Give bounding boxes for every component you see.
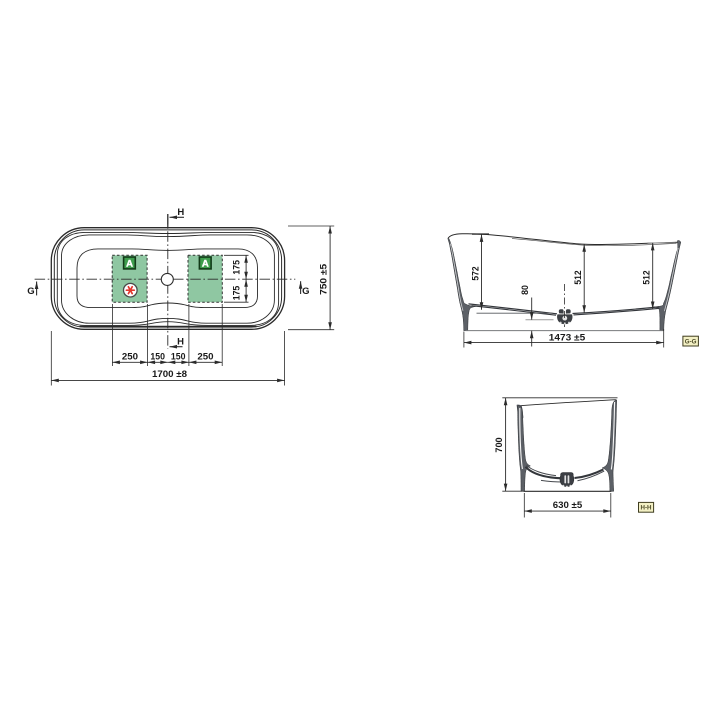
svg-text:250: 250 — [197, 351, 213, 361]
svg-text:H: H — [177, 207, 184, 218]
svg-text:H-H: H-H — [641, 505, 653, 512]
svg-text:G: G — [27, 286, 34, 297]
svg-text:A: A — [126, 258, 133, 269]
svg-text:630 ±5: 630 ±5 — [553, 500, 583, 511]
svg-text:700: 700 — [494, 437, 505, 452]
svg-text:572: 572 — [470, 266, 480, 280]
svg-text:175: 175 — [231, 286, 241, 301]
svg-text:G: G — [302, 286, 309, 297]
svg-text:512: 512 — [573, 270, 583, 284]
svg-text:G-G: G-G — [685, 339, 697, 346]
svg-text:H: H — [177, 337, 184, 348]
svg-text:175: 175 — [231, 260, 241, 275]
svg-text:150: 150 — [171, 351, 186, 361]
svg-text:750 ±5: 750 ±5 — [319, 263, 330, 295]
svg-text:250: 250 — [122, 351, 138, 361]
svg-text:80: 80 — [520, 285, 530, 295]
svg-text:1473 ±5: 1473 ±5 — [549, 333, 586, 344]
svg-text:A: A — [202, 258, 209, 269]
svg-text:512: 512 — [641, 270, 651, 284]
svg-text:150: 150 — [150, 351, 165, 361]
svg-text:1700 ±8: 1700 ±8 — [152, 369, 187, 380]
